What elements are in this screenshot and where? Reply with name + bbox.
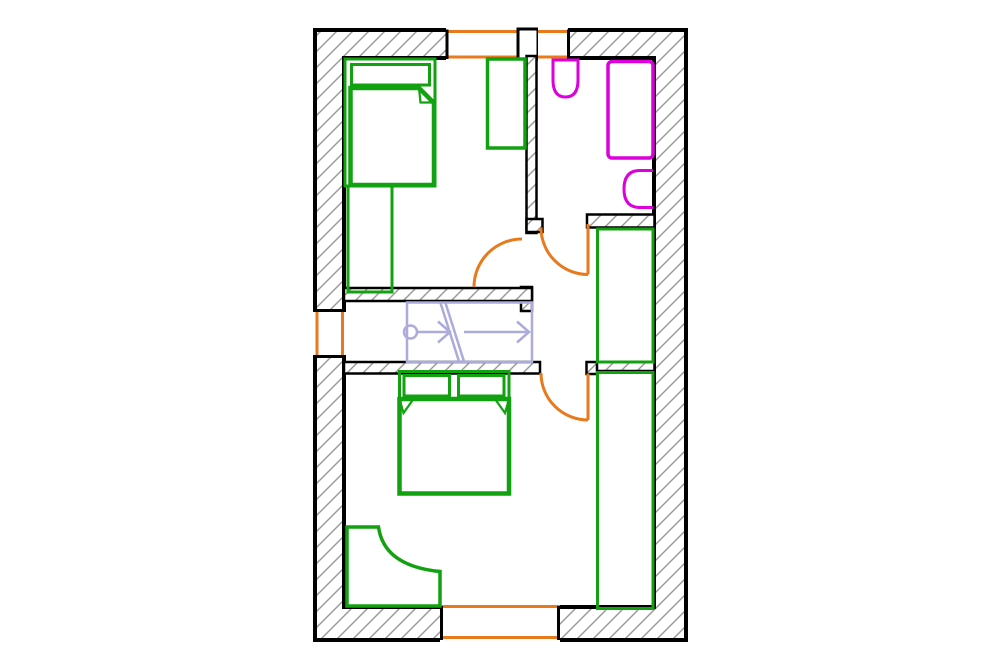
floor-plan bbox=[0, 0, 1000, 669]
bed-double-blanket bbox=[400, 399, 510, 494]
bed-single-pillow bbox=[352, 65, 430, 86]
wall-corridor-north bbox=[344, 288, 532, 301]
floor-plan-page bbox=[0, 0, 1000, 669]
floor-plan-drawing bbox=[312, 26, 686, 642]
bed-single-frame bbox=[345, 59, 435, 186]
outer-wall bbox=[315, 30, 686, 640]
bathroom-bathtub bbox=[608, 62, 653, 159]
wall-bathroom-south bbox=[587, 215, 655, 228]
wardrobe-bedroom1 bbox=[488, 59, 526, 148]
door-bathroom-arc bbox=[541, 228, 588, 275]
wall-divider-vertical bbox=[527, 56, 537, 233]
bathroom-toilet bbox=[624, 171, 653, 208]
wardrobe-hall bbox=[598, 229, 654, 362]
dresser-bedroom1 bbox=[348, 186, 392, 292]
bed-double-pillow-right bbox=[459, 376, 505, 397]
wardrobe-bedroom2 bbox=[598, 373, 654, 609]
bed-double-frame bbox=[400, 372, 510, 494]
bathroom-sink bbox=[553, 60, 578, 97]
door-bedroom2-arc bbox=[541, 373, 588, 420]
bed-single-blanket-fold bbox=[419, 88, 433, 103]
window-top-pier bbox=[518, 29, 538, 59]
door-bedroom1-arc bbox=[474, 239, 522, 287]
bed-double-pillow-left bbox=[404, 376, 450, 397]
desk-corner bbox=[347, 527, 440, 606]
